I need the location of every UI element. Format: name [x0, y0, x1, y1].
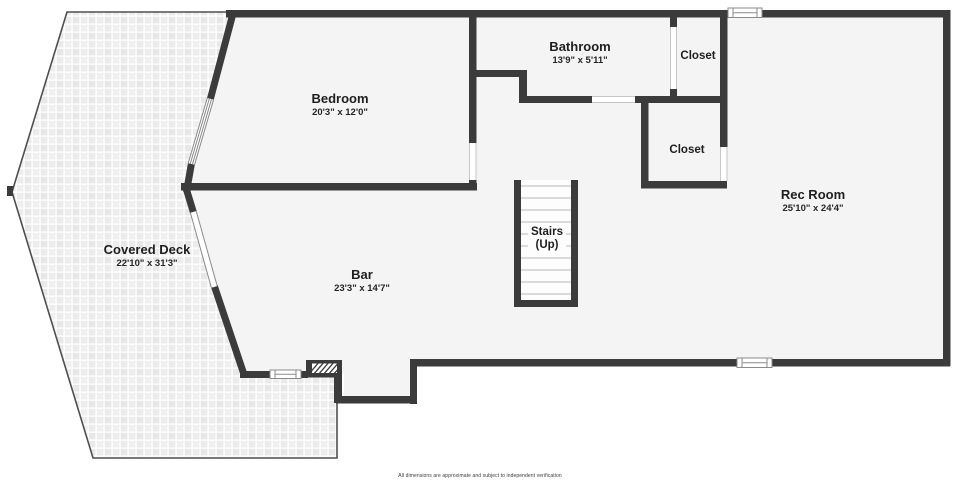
bottom-wall-window: [737, 358, 772, 368]
stairs-name: Stairs: [531, 226, 563, 239]
floor-plan: Bedroom 20'3" x 12'0" Bathroom 13'9" x 5…: [0, 0, 960, 482]
covered-deck-label: Covered Deck 22'10" x 31'3": [104, 242, 191, 270]
closet-top-label: Closet: [680, 49, 715, 63]
bedroom-dims: 20'3" x 12'0": [311, 107, 368, 119]
bedroom-door: [469, 143, 477, 180]
bathroom-name: Bathroom: [549, 39, 610, 55]
closet-mid-name: Closet: [669, 143, 704, 157]
bar-wall-window: [270, 370, 301, 379]
fireplace-icon: [306, 360, 345, 378]
top-wall-window: [728, 8, 762, 18]
rec-room-label: Rec Room 25'10" x 24'4": [781, 187, 845, 215]
deck-apex-marker: [7, 186, 13, 196]
closet-mid-label: Closet: [669, 143, 704, 157]
bathroom-door: [592, 96, 635, 103]
bathroom-dims: 13'9" x 5'11": [549, 55, 610, 67]
bedroom-label: Bedroom 20'3" x 12'0": [311, 91, 368, 119]
bar-label: Bar 23'3" x 14'7": [334, 267, 390, 295]
closet-mid-door: [720, 147, 728, 181]
rec-room-name: Rec Room: [781, 187, 845, 203]
bar-dims: 23'3" x 14'7": [334, 283, 390, 295]
bathroom-label: Bathroom 13'9" x 5'11": [549, 39, 610, 67]
stairs-direction: (Up): [531, 239, 563, 252]
stairs-label: Stairs (Up): [528, 225, 566, 253]
bedroom-name: Bedroom: [311, 91, 368, 107]
closet-top-name: Closet: [680, 49, 715, 63]
covered-deck-dims: 22'10" x 31'3": [104, 258, 191, 270]
rec-room-dims: 25'10" x 24'4": [781, 203, 845, 215]
bar-name: Bar: [334, 267, 390, 283]
closet-top-door: [670, 27, 677, 89]
disclaimer-text: All dimensions are approximate and subje…: [398, 473, 561, 479]
covered-deck-name: Covered Deck: [104, 242, 191, 258]
